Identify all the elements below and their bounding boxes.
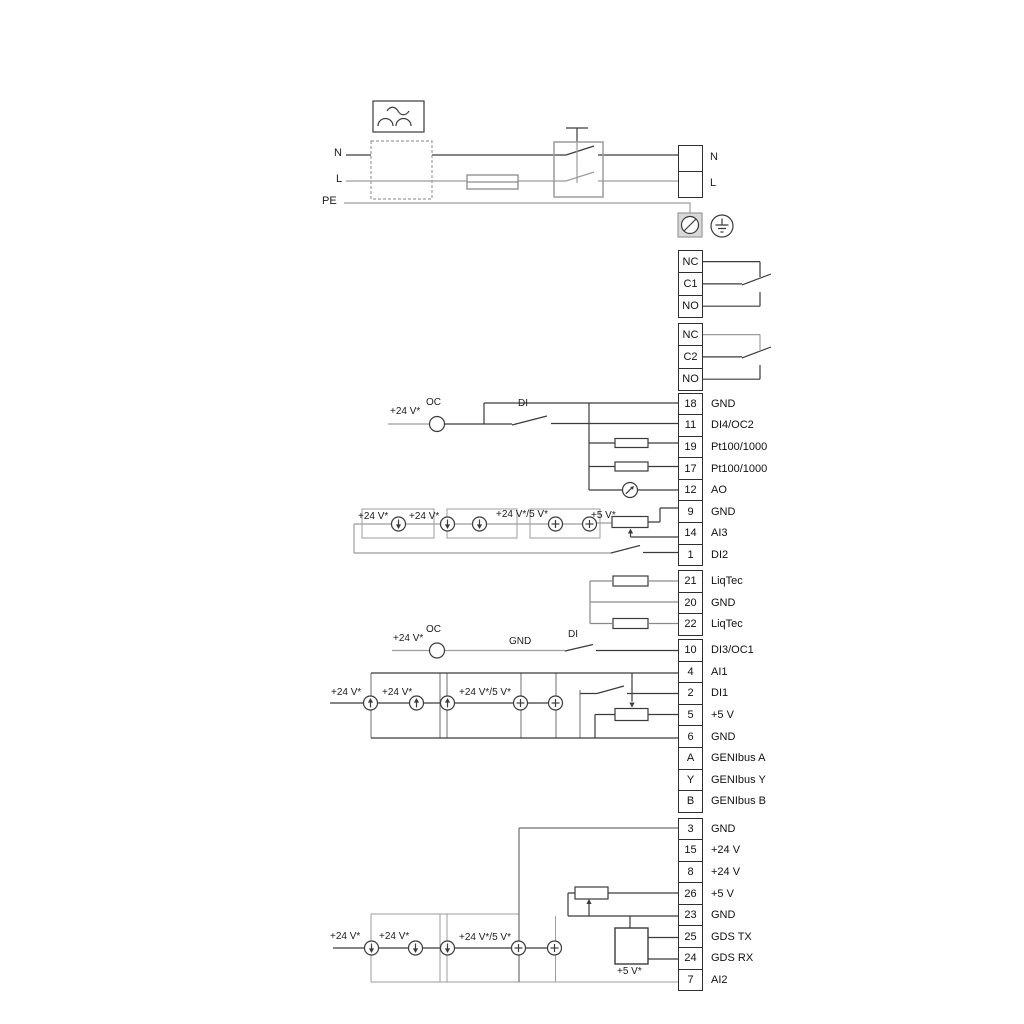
terminal-row: 5 +5 V — [678, 704, 734, 727]
terminal-number: 2 — [678, 682, 703, 705]
terminal-number: 18 — [678, 393, 703, 416]
terminal-label: GND — [711, 909, 735, 921]
terminal-row: NC — [678, 250, 703, 273]
terminal-number: 25 — [678, 925, 703, 948]
terminal-label: GDS TX — [711, 931, 752, 943]
terminal-label: DI2 — [711, 549, 728, 561]
terminal-row: NO — [678, 368, 703, 391]
terminal-number: B — [678, 790, 703, 813]
terminal-label: LiqTec — [711, 618, 743, 630]
supply-label: +24 V* — [331, 687, 361, 698]
terminal-number: 20 — [678, 592, 703, 615]
terminal-row: 6 GND — [678, 725, 735, 748]
terminal-number: C2 — [678, 345, 703, 368]
terminal-row: 9 GND — [678, 500, 735, 523]
terminal-row: 11 DI4/OC2 — [678, 414, 754, 437]
terminal-number: A — [678, 747, 703, 770]
terminal-row: 7 AI2 — [678, 969, 728, 992]
supply-label: +24 V* — [330, 931, 360, 942]
terminal-number: 1 — [678, 544, 703, 567]
main-switch-box — [554, 142, 603, 197]
supply-label: +24 V* — [393, 633, 423, 644]
terminal-row: 21 LiqTec — [678, 570, 743, 593]
terminal-row: NO — [678, 295, 703, 318]
terminal-label: GND — [711, 506, 735, 518]
terminal-number: NC — [678, 250, 703, 273]
terminal-number: 12 — [678, 479, 703, 502]
terminal-row: 10 DI3/OC1 — [678, 639, 754, 662]
terminal-number: NO — [678, 295, 703, 318]
current-source-icon — [409, 941, 423, 955]
terminal-number: C1 — [678, 272, 703, 295]
terminal-label: GENIbus B — [711, 795, 766, 807]
relay1-terminal-block: NC C1 NO — [678, 250, 703, 318]
relay2-terminal-block: NC C2 NO — [678, 323, 703, 391]
supply-label: +5 V* — [617, 966, 642, 977]
current-source-icon — [365, 941, 379, 955]
terminal-cell-l — [678, 171, 703, 198]
terminal-label: +5 V — [711, 709, 734, 721]
protective-earth-icon — [711, 215, 733, 237]
terminal-row: 4 AI1 — [678, 661, 728, 684]
mains-l-label: L — [336, 174, 342, 185]
terminal-row: 3 GND — [678, 818, 735, 841]
terminal-label: GND — [711, 597, 735, 609]
supply-label: +24 V* — [358, 511, 388, 522]
terminal-label: +24 V — [711, 866, 740, 878]
terminal-row: 1 DI2 — [678, 544, 728, 567]
mains-n-label: N — [334, 148, 342, 159]
oc-label: OC — [426, 397, 441, 408]
current-source-icon — [410, 696, 424, 710]
terminal-row — [678, 171, 703, 198]
terminal-number: 22 — [678, 613, 703, 636]
terminal-label: GENIbus A — [711, 752, 765, 764]
emc-filter-box — [371, 141, 432, 199]
terminal-number: 24 — [678, 947, 703, 970]
terminal-label: GND — [711, 731, 735, 743]
terminal-row: 12 AO — [678, 479, 727, 502]
terminal-number: 26 — [678, 882, 703, 905]
supply-label: +24 V* — [382, 687, 412, 698]
terminal-row: 19 Pt100/1000 — [678, 436, 767, 459]
plus-source-icon — [514, 696, 528, 710]
terminal-n-label: N — [710, 152, 718, 163]
terminal-label: +5 V — [711, 888, 734, 900]
terminal-label: DI4/OC2 — [711, 419, 754, 431]
terminal-row — [678, 145, 703, 172]
mains-filter-symbol — [373, 101, 424, 132]
terminal-row: 17 Pt100/1000 — [678, 457, 767, 480]
terminal-label: GENIbus Y — [711, 774, 766, 786]
terminal-number: NC — [678, 323, 703, 346]
terminal-row: 2 DI1 — [678, 682, 728, 705]
current-source-icon — [441, 696, 455, 710]
terminal-number: 3 — [678, 818, 703, 841]
plus-source-icon — [549, 696, 563, 710]
section-b-components — [611, 508, 678, 553]
io-terminal-block-2: 10 DI3/OC1 4 AI1 2 DI1 5 +5 V 6 GND — [678, 639, 766, 813]
terminal-l-label: L — [710, 178, 716, 189]
terminal-number: 19 — [678, 436, 703, 459]
terminal-label: AI1 — [711, 666, 728, 678]
terminal-row: 22 LiqTec — [678, 613, 743, 636]
io-terminal-block-1: 18 GND 11 DI4/OC2 19 Pt100/1000 17 Pt100… — [678, 393, 767, 567]
terminal-number: 9 — [678, 500, 703, 523]
section-c-wires — [330, 673, 678, 738]
supply-label: +5 V* — [591, 510, 616, 521]
terminal-row: 14 AI3 — [678, 522, 728, 545]
section-a-wires — [388, 403, 678, 498]
current-source-icon — [441, 517, 455, 531]
terminal-number: 17 — [678, 457, 703, 480]
section-d-wires — [333, 828, 678, 982]
supply-label: +24 V*/5 V* — [496, 509, 548, 520]
terminal-row: Y GENIbus Y — [678, 769, 766, 792]
terminal-number: 7 — [678, 969, 703, 992]
terminal-row: 26 +5 V — [678, 882, 734, 905]
current-source-icon — [392, 517, 406, 531]
terminal-number: 23 — [678, 904, 703, 927]
liqtec-terminal-block: 21 LiqTec 20 GND 22 LiqTec — [678, 570, 743, 636]
terminal-label: GDS RX — [711, 952, 753, 964]
supply-label: +24 V*/5 V* — [459, 687, 511, 698]
terminal-row: 15 +24 V — [678, 839, 740, 862]
supply-label: +24 V* — [409, 511, 439, 522]
terminal-row: C1 — [678, 272, 703, 295]
terminal-number: 21 — [678, 570, 703, 593]
pe-screw-terminal — [678, 213, 702, 237]
terminal-label: LiqTec — [711, 575, 743, 587]
plus-source-icon — [548, 941, 562, 955]
terminal-label: AI3 — [711, 527, 728, 539]
terminal-label: GND — [711, 823, 735, 835]
terminal-number: 15 — [678, 839, 703, 862]
supply-label: +24 V* — [390, 406, 420, 417]
terminal-row: 20 GND — [678, 592, 735, 615]
io-terminal-block-3: 3 GND 15 +24 V 8 +24 V 26 +5 V 23 GND — [678, 818, 753, 992]
wiring-diagram: N L PE N L +24 V* OC DI +24 V* +24 V* +2… — [0, 0, 1024, 1024]
current-source-icon — [364, 696, 378, 710]
di-label: DI — [568, 629, 578, 640]
terminal-label: GND — [711, 398, 735, 410]
terminal-label: DI3/OC1 — [711, 644, 754, 656]
terminal-row: 25 GDS TX — [678, 925, 752, 948]
terminal-row: A GENIbus A — [678, 747, 765, 770]
terminal-row: 24 GDS RX — [678, 947, 753, 970]
gnd-label: GND — [509, 636, 531, 647]
supply-label: +24 V* — [379, 931, 409, 942]
terminal-row: 8 +24 V — [678, 861, 740, 884]
relay2-contact — [703, 335, 771, 380]
terminal-label: Pt100/1000 — [711, 463, 767, 475]
terminal-cell-n — [678, 145, 703, 172]
current-source-icon — [441, 941, 455, 955]
terminal-number: NO — [678, 368, 703, 391]
terminal-number: 14 — [678, 522, 703, 545]
mains-pe-label: PE — [322, 196, 337, 207]
terminal-row: 23 GND — [678, 904, 735, 927]
plus-source-icon — [512, 941, 526, 955]
terminal-label: AI2 — [711, 974, 728, 986]
plus-source-icon — [549, 517, 563, 531]
mains-terminal-block — [678, 145, 703, 198]
liqtec-wires — [590, 576, 678, 629]
terminal-number: 10 — [678, 639, 703, 662]
terminal-row: C2 — [678, 345, 703, 368]
relay1-contact — [703, 262, 771, 307]
current-source-icon — [473, 517, 487, 531]
terminal-row: NC — [678, 323, 703, 346]
supply-label: +24 V*/5 V* — [459, 932, 511, 943]
oc-label: OC — [426, 624, 441, 635]
terminal-label: AO — [711, 484, 727, 496]
terminal-label: +24 V — [711, 844, 740, 856]
terminal-number: 4 — [678, 661, 703, 684]
terminal-number: 11 — [678, 414, 703, 437]
di-label: DI — [518, 398, 528, 409]
open-collector-icon — [430, 643, 445, 658]
terminal-label: Pt100/1000 — [711, 441, 767, 453]
terminal-number: 5 — [678, 704, 703, 727]
terminal-row: B GENIbus B — [678, 790, 766, 813]
terminal-label: DI1 — [711, 687, 728, 699]
terminal-number: 8 — [678, 861, 703, 884]
terminal-number: 6 — [678, 725, 703, 748]
open-collector-icon — [430, 417, 445, 432]
terminal-number: Y — [678, 769, 703, 792]
fuse-symbol — [467, 175, 518, 189]
terminal-row: 18 GND — [678, 393, 735, 416]
